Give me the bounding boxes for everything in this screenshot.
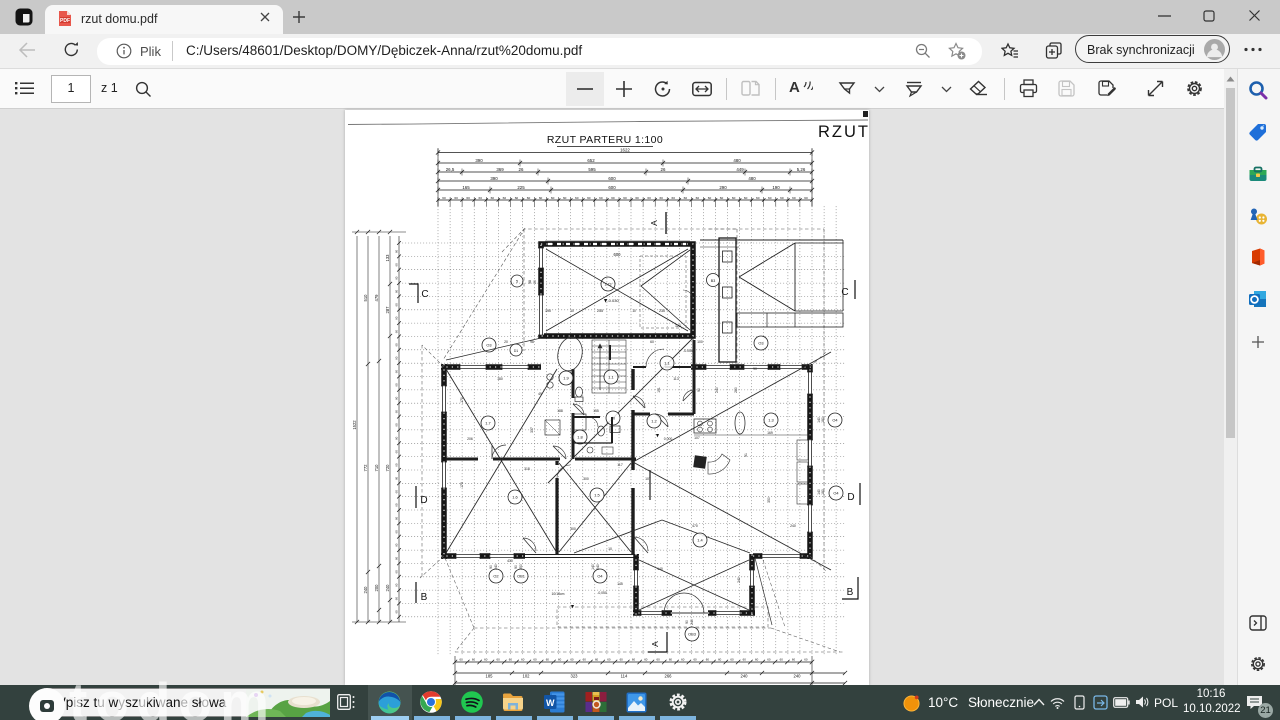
svg-text:60: 60 — [607, 658, 611, 662]
svg-text:60: 60 — [623, 196, 627, 200]
svg-text:-0.050: -0.050 — [683, 349, 693, 353]
svg-text:720: 720 — [385, 464, 390, 472]
svg-text:60: 60 — [395, 490, 399, 494]
svg-text:145: 145 — [617, 582, 623, 586]
svg-text:600: 600 — [608, 176, 616, 181]
svg-text:337: 337 — [530, 427, 534, 433]
svg-text:1622: 1622 — [620, 147, 630, 152]
svg-text:60: 60 — [460, 658, 464, 662]
svg-text:280: 280 — [734, 387, 738, 393]
svg-text:390: 390 — [475, 158, 483, 163]
svg-text:240: 240 — [363, 586, 368, 594]
svg-text:60: 60 — [635, 196, 639, 200]
svg-text:-0.030: -0.030 — [607, 298, 619, 303]
svg-text:1.5: 1.5 — [594, 493, 599, 498]
svg-text:90: 90 — [697, 388, 701, 392]
svg-text:140: 140 — [817, 489, 821, 495]
svg-text:60: 60 — [669, 658, 673, 662]
svg-text:185: 185 — [486, 674, 494, 679]
svg-text:O4: O4 — [832, 418, 838, 423]
svg-text:60: 60 — [395, 476, 399, 480]
svg-text:0,000: 0,000 — [664, 437, 673, 441]
svg-text:191: 191 — [657, 387, 661, 393]
svg-text:60: 60 — [395, 517, 399, 521]
svg-text:510: 510 — [363, 294, 368, 302]
svg-text:225: 225 — [517, 185, 525, 190]
svg-text:60: 60 — [395, 543, 399, 547]
svg-text:OB1: OB1 — [517, 574, 525, 579]
svg-text:1.3: 1.3 — [768, 418, 773, 423]
svg-text:1.8: 1.8 — [577, 435, 582, 440]
svg-text:60: 60 — [756, 196, 760, 200]
svg-text:60: 60 — [780, 196, 784, 200]
svg-text:B: B — [421, 592, 428, 603]
svg-text:240: 240 — [385, 584, 390, 592]
svg-text:318: 318 — [524, 467, 530, 471]
svg-text:60: 60 — [539, 196, 543, 200]
svg-text:240: 240 — [741, 674, 749, 679]
svg-text:60: 60 — [466, 196, 470, 200]
svg-text:60: 60 — [755, 658, 759, 662]
svg-text:114: 114 — [621, 674, 628, 679]
svg-text:190: 190 — [772, 185, 780, 190]
svg-text:710: 710 — [374, 464, 379, 472]
svg-text:D: D — [847, 492, 854, 503]
svg-text:250: 250 — [519, 564, 523, 570]
svg-text:60: 60 — [732, 196, 736, 200]
svg-text:A: A — [649, 220, 659, 226]
svg-text:206: 206 — [467, 437, 473, 441]
svg-text:60: 60 — [509, 658, 513, 662]
svg-text:190: 190 — [545, 309, 551, 313]
svg-text:369: 369 — [496, 167, 504, 172]
svg-text:60: 60 — [395, 316, 399, 320]
svg-text:240: 240 — [596, 564, 600, 570]
svg-text:O3: O3 — [486, 343, 491, 348]
svg-text:100: 100 — [697, 340, 703, 344]
svg-text:240: 240 — [715, 387, 719, 393]
svg-text:60: 60 — [804, 196, 808, 200]
svg-text:60: 60 — [496, 658, 500, 662]
svg-text:449: 449 — [736, 167, 744, 172]
svg-text:60: 60 — [681, 658, 685, 662]
svg-text:60: 60 — [620, 658, 624, 662]
svg-text:60: 60 — [395, 570, 399, 574]
svg-text:60: 60 — [521, 658, 525, 662]
svg-text:C: C — [841, 287, 848, 298]
svg-text:60: 60 — [395, 263, 399, 267]
svg-text:266: 266 — [665, 674, 673, 679]
svg-text:60: 60 — [395, 396, 399, 400]
svg-text:91: 91 — [744, 453, 748, 457]
svg-text:60: 60 — [575, 196, 579, 200]
svg-text:240: 240 — [494, 564, 498, 570]
svg-text:60: 60 — [743, 658, 747, 662]
svg-text:1.1: 1.1 — [664, 361, 669, 366]
svg-text:60: 60 — [395, 330, 399, 334]
svg-text:60: 60 — [744, 196, 748, 200]
svg-text:26: 26 — [519, 167, 524, 172]
svg-text:169: 169 — [767, 431, 773, 435]
svg-text:255: 255 — [597, 309, 603, 313]
svg-text:230: 230 — [659, 309, 665, 313]
svg-text:107: 107 — [694, 436, 700, 440]
svg-text:1.2: 1.2 — [651, 419, 656, 424]
svg-text:60: 60 — [527, 196, 531, 200]
svg-text:D: D — [420, 495, 427, 506]
svg-text:60: 60 — [454, 196, 458, 200]
svg-text:O3: O3 — [758, 341, 763, 346]
svg-text:140: 140 — [657, 567, 663, 571]
svg-text:60: 60 — [657, 658, 661, 662]
svg-text:60: 60 — [696, 196, 700, 200]
svg-text:60: 60 — [708, 196, 712, 200]
svg-text:60: 60 — [693, 658, 697, 662]
svg-text:RZUT PARTERU 1:100: RZUT PARTERU 1:100 — [547, 134, 663, 146]
svg-text:60: 60 — [570, 658, 574, 662]
svg-text:240: 240 — [737, 577, 741, 583]
svg-text:60: 60 — [650, 340, 654, 344]
svg-text:60: 60 — [546, 658, 550, 662]
svg-text:60: 60 — [395, 463, 399, 467]
svg-text:479: 479 — [374, 294, 379, 302]
svg-text:60: 60 — [395, 343, 399, 347]
svg-text:60: 60 — [792, 658, 796, 662]
svg-text:90: 90 — [753, 367, 757, 371]
svg-text:W: W — [546, 698, 555, 708]
svg-text:165: 165 — [462, 185, 470, 190]
svg-text:60: 60 — [718, 658, 722, 662]
svg-text:C: C — [421, 289, 428, 300]
svg-text:652: 652 — [587, 158, 595, 163]
svg-text:60: 60 — [611, 196, 615, 200]
svg-text:60: 60 — [395, 370, 399, 374]
svg-text:180: 180 — [821, 489, 825, 495]
svg-text:140: 140 — [817, 417, 821, 423]
svg-text:D1: D1 — [514, 349, 518, 353]
svg-text:60: 60 — [632, 658, 636, 662]
svg-text:350: 350 — [767, 497, 771, 503]
svg-text:390: 390 — [490, 176, 498, 181]
svg-text:1.13: 1.13 — [605, 283, 612, 287]
svg-text:300: 300 — [583, 477, 589, 481]
svg-text:1522: 1522 — [352, 420, 357, 430]
svg-text:240: 240 — [690, 619, 694, 625]
svg-text:26: 26 — [661, 167, 666, 172]
svg-text:200: 200 — [374, 584, 379, 592]
svg-text:O4: O4 — [597, 574, 603, 579]
svg-text:-0,050: -0,050 — [597, 591, 607, 595]
svg-text:188: 188 — [557, 409, 563, 413]
svg-text:60: 60 — [647, 196, 651, 200]
svg-text:120: 120 — [675, 324, 681, 328]
svg-text:O4: O4 — [833, 491, 839, 496]
svg-text:60: 60 — [395, 410, 399, 414]
svg-text:60: 60 — [599, 196, 603, 200]
svg-text:60: 60 — [551, 196, 555, 200]
svg-text:A: A — [650, 641, 660, 647]
svg-text:470: 470 — [692, 524, 698, 528]
svg-text:600: 600 — [608, 185, 616, 190]
svg-text:60: 60 — [442, 196, 446, 200]
svg-text:90: 90 — [489, 565, 493, 569]
svg-text:10/18cm: 10/18cm — [551, 592, 564, 596]
svg-text:PDF: PDF — [60, 18, 70, 24]
svg-text:60: 60 — [484, 658, 488, 662]
svg-text:10: 10 — [570, 309, 574, 313]
svg-text:60: 60 — [720, 196, 724, 200]
svg-text:60: 60 — [395, 290, 399, 294]
svg-text:60: 60 — [595, 658, 599, 662]
svg-text:60: 60 — [491, 196, 495, 200]
svg-text:90: 90 — [685, 620, 689, 624]
svg-text:60: 60 — [395, 450, 399, 454]
svg-text:60: 60 — [395, 250, 399, 254]
svg-text:60: 60 — [767, 658, 771, 662]
svg-text:60: 60 — [672, 196, 676, 200]
svg-text:1.6: 1.6 — [512, 495, 517, 500]
svg-text:117: 117 — [617, 463, 623, 467]
svg-text:B3: B3 — [711, 279, 715, 283]
svg-text:20: 20 — [533, 280, 537, 284]
svg-text:480: 480 — [748, 176, 756, 181]
svg-text:60: 60 — [533, 658, 537, 662]
svg-text:60: 60 — [780, 658, 784, 662]
svg-text:60: 60 — [792, 196, 796, 200]
svg-text:240: 240 — [794, 674, 802, 679]
svg-text:O2: O2 — [493, 574, 498, 579]
svg-text:290: 290 — [719, 185, 727, 190]
svg-text:60: 60 — [478, 196, 482, 200]
svg-text:60: 60 — [395, 597, 399, 601]
svg-text:60: 60 — [395, 557, 399, 561]
svg-text:60: 60 — [768, 196, 772, 200]
svg-text:180: 180 — [821, 417, 825, 423]
svg-text:60: 60 — [587, 196, 591, 200]
svg-text:60: 60 — [395, 276, 399, 280]
svg-text:595: 595 — [588, 167, 596, 172]
svg-text:60: 60 — [395, 583, 399, 587]
svg-text:1.1: 1.1 — [608, 375, 613, 380]
svg-text:1.7: 1.7 — [485, 421, 490, 426]
svg-text:OB3: OB3 — [688, 632, 696, 637]
svg-text:180: 180 — [497, 377, 503, 381]
svg-text:60: 60 — [395, 530, 399, 534]
svg-text:5,26: 5,26 — [797, 167, 806, 172]
svg-text:5: 5 — [516, 280, 518, 284]
svg-text:1.9: 1.9 — [563, 376, 568, 381]
svg-text:60: 60 — [730, 658, 734, 662]
svg-text:60: 60 — [395, 383, 399, 387]
svg-text:20: 20 — [504, 340, 508, 344]
svg-text:60: 60 — [395, 356, 399, 360]
svg-text:60: 60 — [659, 196, 663, 200]
svg-text:60: 60 — [583, 658, 587, 662]
svg-text:60: 60 — [515, 196, 519, 200]
svg-text:60: 60 — [558, 658, 562, 662]
svg-text:133: 133 — [385, 254, 390, 262]
svg-text:49: 49 — [538, 392, 542, 396]
svg-text:60: 60 — [395, 436, 399, 440]
svg-text:1.4: 1.4 — [697, 538, 703, 543]
svg-text:113: 113 — [673, 377, 679, 381]
svg-text:60: 60 — [395, 610, 399, 614]
svg-text:26,5: 26,5 — [446, 167, 455, 172]
svg-text:323: 323 — [571, 674, 579, 679]
svg-text:600: 600 — [614, 252, 622, 257]
svg-text:60: 60 — [706, 658, 710, 662]
svg-text:140: 140 — [591, 564, 595, 570]
svg-text:60: 60 — [503, 196, 507, 200]
svg-text:B: B — [847, 587, 854, 598]
svg-text:60: 60 — [563, 196, 567, 200]
svg-text:98: 98 — [528, 280, 532, 284]
svg-text:240: 240 — [790, 524, 796, 528]
svg-text:60: 60 — [472, 658, 476, 662]
svg-text:300: 300 — [570, 527, 576, 531]
svg-text:60: 60 — [395, 423, 399, 427]
svg-text:287: 287 — [385, 306, 390, 314]
svg-text:60: 60 — [644, 658, 648, 662]
svg-text:RZUT P: RZUT P — [818, 123, 869, 141]
svg-text:10: 10 — [632, 309, 636, 313]
svg-text:102: 102 — [523, 674, 531, 679]
svg-text:175: 175 — [460, 482, 464, 488]
svg-text:155: 155 — [593, 409, 599, 413]
svg-text:60: 60 — [395, 303, 399, 307]
svg-text:60: 60 — [804, 658, 808, 662]
svg-text:772: 772 — [363, 464, 368, 472]
svg-text:60: 60 — [684, 196, 688, 200]
svg-text:480: 480 — [733, 158, 741, 163]
svg-text:90: 90 — [514, 565, 518, 569]
svg-text:10: 10 — [608, 547, 612, 551]
svg-text:60: 60 — [395, 503, 399, 507]
svg-text:170: 170 — [460, 397, 464, 403]
svg-text:430: 430 — [507, 559, 513, 563]
